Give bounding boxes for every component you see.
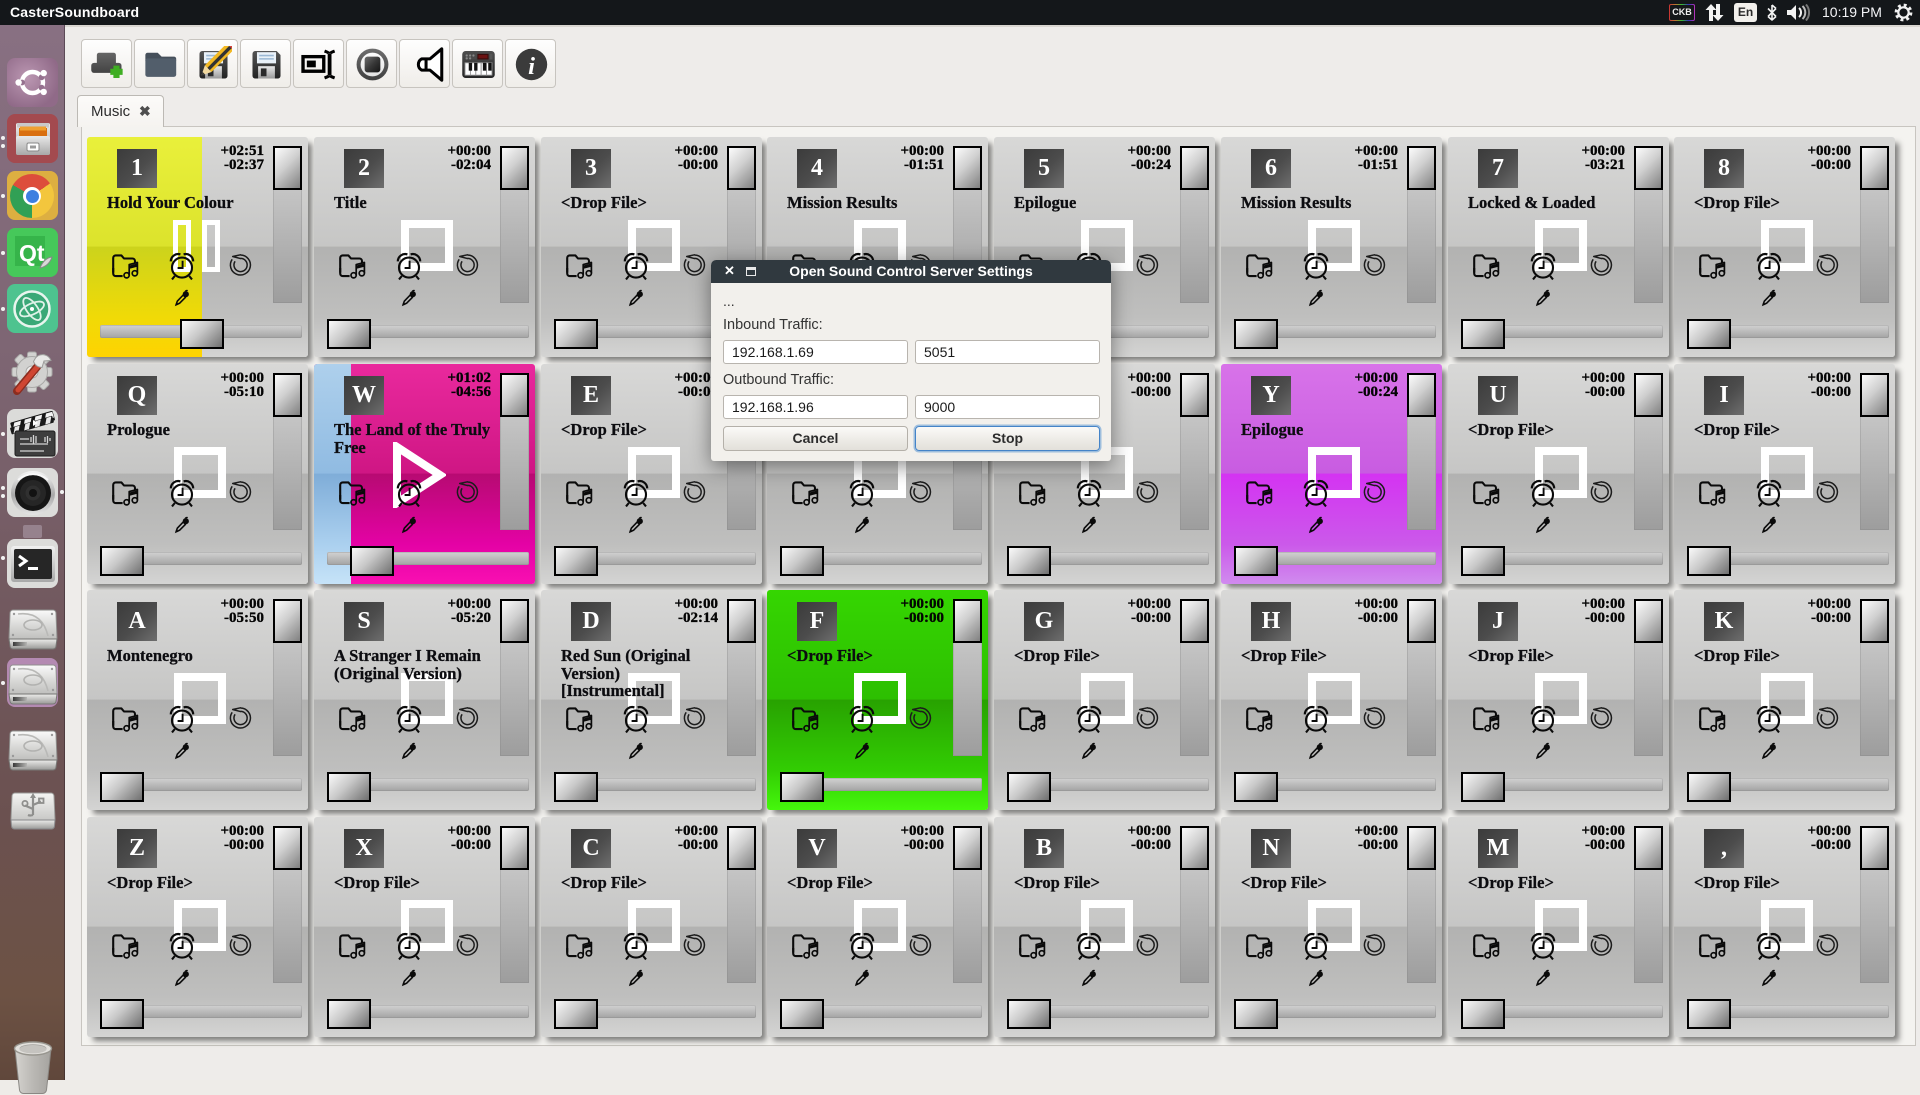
svg-text:Qt: Qt bbox=[19, 240, 45, 266]
svg-text:i: i bbox=[528, 53, 535, 80]
